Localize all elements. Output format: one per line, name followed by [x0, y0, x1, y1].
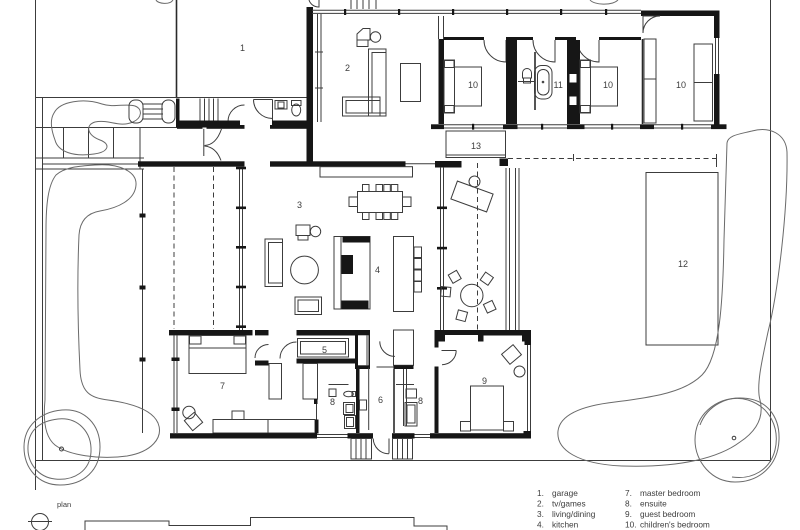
svg-text:3.: 3. — [537, 509, 544, 519]
svg-text:children's bedroom: children's bedroom — [640, 520, 710, 530]
svg-text:2: 2 — [345, 63, 350, 73]
svg-text:10.: 10. — [625, 520, 637, 530]
svg-text:plan: plan — [57, 500, 71, 509]
svg-text:11: 11 — [554, 80, 563, 90]
svg-text:ensuite: ensuite — [640, 499, 667, 509]
svg-text:8.: 8. — [625, 499, 632, 509]
svg-text:10: 10 — [468, 80, 478, 90]
svg-text:4.: 4. — [537, 520, 544, 530]
svg-text:guest bedroom: guest bedroom — [640, 509, 695, 519]
svg-text:7: 7 — [220, 381, 225, 391]
svg-text:4: 4 — [375, 265, 380, 275]
svg-text:8: 8 — [330, 397, 335, 407]
svg-text:9.: 9. — [625, 509, 632, 519]
svg-text:master bedroom: master bedroom — [640, 488, 700, 498]
svg-text:12: 12 — [678, 259, 688, 269]
svg-text:10: 10 — [676, 80, 686, 90]
svg-text:7.: 7. — [625, 488, 632, 498]
svg-text:tv/games: tv/games — [552, 499, 586, 509]
svg-text:2.: 2. — [537, 499, 544, 509]
svg-text:13: 13 — [471, 141, 481, 151]
svg-text:living/dining: living/dining — [552, 509, 596, 519]
svg-text:1: 1 — [240, 43, 245, 53]
svg-text:6: 6 — [378, 395, 383, 405]
svg-text:1.: 1. — [537, 488, 544, 498]
svg-text:9: 9 — [482, 376, 487, 386]
svg-text:5: 5 — [322, 345, 327, 355]
svg-text:10: 10 — [603, 80, 613, 90]
svg-text:garage: garage — [552, 488, 578, 498]
svg-text:kitchen: kitchen — [552, 520, 579, 530]
svg-text:8: 8 — [418, 396, 423, 406]
svg-text:3: 3 — [297, 200, 302, 210]
